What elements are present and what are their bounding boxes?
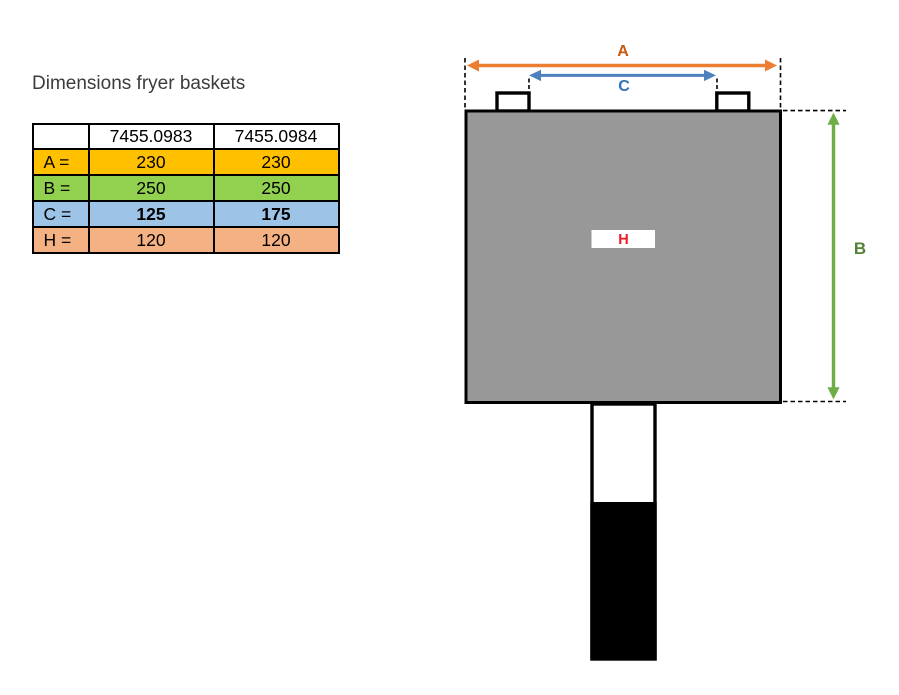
svg-text:H: H [618,232,628,248]
svg-text:A: A [617,43,629,60]
svg-text:C: C [618,78,630,95]
svg-text:B: B [854,239,866,258]
